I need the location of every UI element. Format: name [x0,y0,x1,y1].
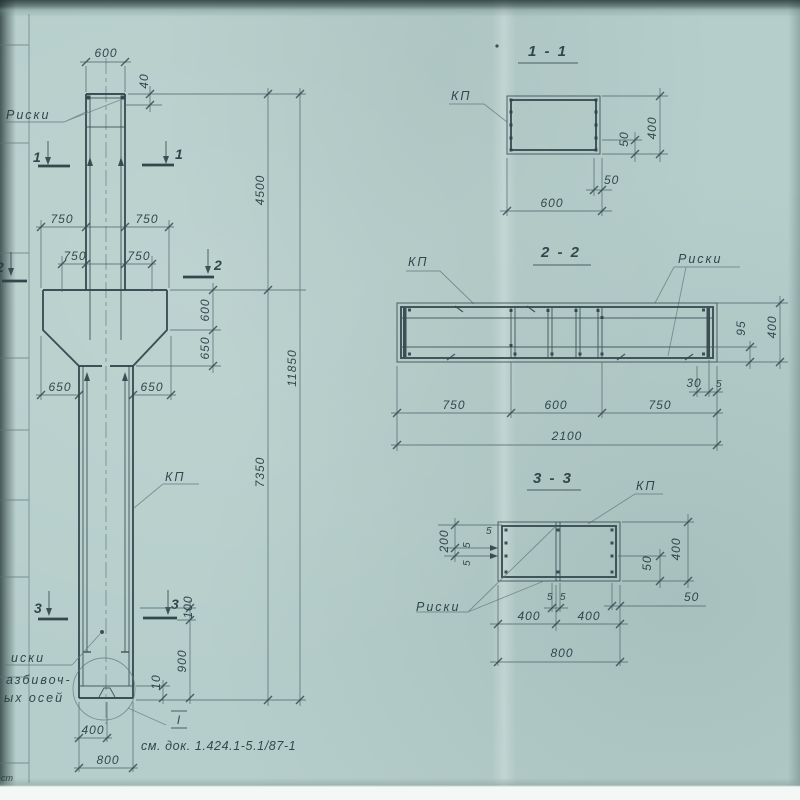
section-1-1-outer-rect [507,96,600,154]
section-2-2-end-plate-right [707,308,711,357]
s33-dim-200: 200 [437,529,451,553]
section-2-2-kp-leader [406,271,474,304]
s22-dim-750-right: 750 [648,398,671,412]
s11-dim-50v: 50 [617,131,631,146]
section-3-3-kp-label: КП [636,479,656,493]
section-1-1-stirrup-frame [511,100,596,150]
dim-7350: 7350 [253,457,267,488]
section-1-1-rebar-dots [510,99,598,152]
section-2-2-riski-leaders [655,267,740,356]
s33-dim-400-a: 400 [517,609,540,623]
dim-top-width: 600 [94,46,117,60]
s22-dim-750-left: 750 [442,398,465,412]
main-elevation-view: 1 1 2 2 3 3 [0,46,306,772]
s22-dim-400: 400 [765,315,779,338]
section-1-1-dimensions: 50 400 50 600 [500,88,668,216]
s33-dim-5-left-a: 5 [462,542,473,548]
dim-650-left: 650 [48,380,71,394]
detail-circle-group: I [73,658,187,728]
cut-label-1-right: 1 [175,146,183,162]
cut-label-2-right: 2 [213,257,222,273]
upper-shaft-outline [86,94,125,290]
s33-dim-50-right: 50 [640,555,654,570]
column-drawing: ст 1 1 [0,0,800,800]
dim-750-r2-right: 750 [127,249,150,263]
section-1-1-view: 1 - 1 КП 50 400 50 600 [449,43,668,216]
section-3-3-view: 3 - 3 КП Риски 200 5 [416,470,706,666]
cut-label-1-left: 1 [33,149,41,165]
scanned-drawing-sheet: ст 1 1 [0,0,800,800]
s33-dim-400-right: 400 [669,537,683,560]
section-2-2-kp-label: КП [408,255,428,269]
detail-mark-label: I [177,713,181,727]
dim-4500: 4500 [253,175,267,206]
s33-dim-50-bottom: 50 [684,590,699,604]
cut-label-3-left: 3 [34,600,42,616]
upper-rebar-bars [90,98,121,340]
dimension-lines [36,62,306,772]
dim-taper-650: 650 [198,336,212,359]
section-cut-marks: 1 1 2 2 3 3 [0,141,222,619]
section-2-2-edge-ticks [447,306,693,360]
console-outline [43,290,167,366]
s22-dim-600: 600 [544,398,567,412]
s33-dim-5-top: 5 [486,526,492,537]
section-3-3-kp-leader [588,494,663,524]
s33-dim-5-left-b: 5 [462,560,473,566]
ink-spot-artifact [495,44,498,47]
section-2-2-title: 2 - 2 [540,244,581,261]
dim-750-r1-right: 750 [135,212,158,226]
section-3-3-title: 3 - 3 [533,470,573,487]
dim-650-right: 650 [140,380,163,394]
dim-10: 10 [149,674,163,689]
section-2-2-stirrup-frame [401,307,713,358]
section-2-2-view: 2 - 2 КП Риски [391,244,788,451]
dim-11850: 11850 [285,349,299,386]
edge-fragment-text: ст [1,773,14,783]
s33-dim-5-bot-a: 5 [547,592,553,603]
dim-900: 900 [175,649,189,672]
section-1-1-title: 1 - 1 [528,43,568,60]
s22-dim-95: 95 [734,320,748,335]
section-1-1-kp-label: КП [451,89,471,103]
axis-riski-dot [100,630,104,634]
s11-dim-600: 600 [540,196,563,210]
section-3-3-stirrup-frame [502,526,616,577]
section-2-2-end-plate-left [403,308,407,357]
cut-label-3-right: 3 [171,596,179,612]
dim-cap-40: 40 [137,73,151,88]
dim-750-r1-left: 750 [50,212,73,226]
s22-dim-2100: 2100 [551,429,583,443]
section-3-3-dimensions: 200 5 5 5 50 400 50 5 5 400 400 800 [437,514,706,666]
cut-label-2-left: 2 [0,259,4,275]
dim-bottom-400: 400 [81,723,104,737]
section-2-2-dimensions: 95 400 30 5 750 600 750 2100 [391,296,788,451]
detail-leader [128,708,166,725]
top-cap-lines [86,98,125,127]
dim-750-r2-left: 750 [63,249,86,263]
s22-dim-5: 5 [716,379,722,390]
riski-top-label: Риски [6,108,50,122]
section-3-3-rebar-dots [505,529,614,574]
s33-dim-5-bot-b: 5 [560,592,566,603]
razbivoch-cutoff: азбивоч- [6,673,72,687]
see-doc-note: см. док. 1.424.1-5.1/87-1 [141,739,296,753]
adjacent-sheet-table-lines [0,14,29,783]
dim-console-600: 600 [198,298,212,321]
s33-dim-800: 800 [550,646,573,660]
riski-bottom-cutoff: иски [11,651,45,665]
s11-dim-50h: 50 [604,173,619,187]
osey-cutoff: ых осей [4,691,64,705]
s11-dim-400: 400 [645,116,659,139]
kp-main-label: КП [165,470,185,484]
s33-dim-400-b: 400 [577,609,600,623]
section-2-2-riski-label: Риски [678,252,722,266]
dim-bottom-800: 800 [96,753,119,767]
s22-dim-30: 30 [686,376,701,390]
base-anchor-mark [99,688,115,697]
section-2-2-longitudinal-bars [402,318,712,347]
section-2-2-stirrups [511,307,602,358]
dim-100: 100 [181,595,195,618]
leader-lines [2,100,199,665]
section-1-1-kp-leader [449,104,507,122]
section-2-2-rebar-dots [408,309,705,356]
